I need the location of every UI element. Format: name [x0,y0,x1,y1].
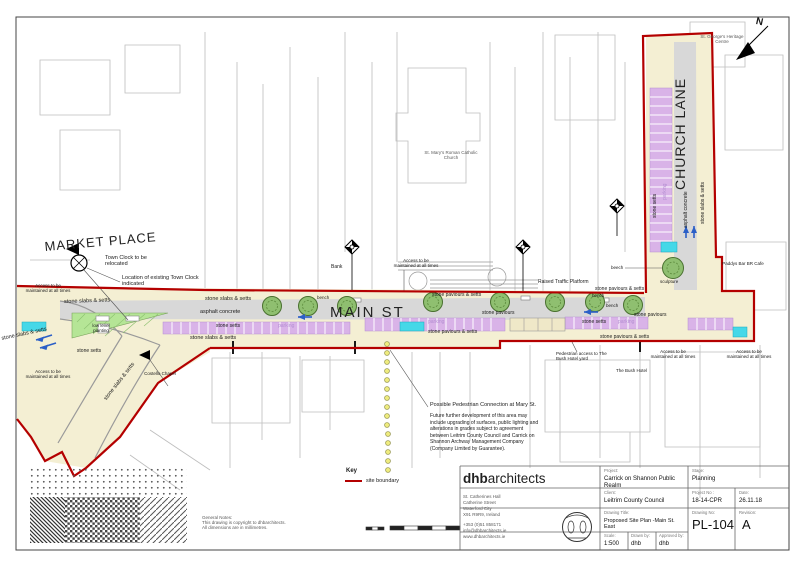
surface-label: parking [618,320,634,326]
pedestrian-connection-note: Possible Pedestrian Connection at Mary S… [430,402,536,408]
surface-label: stone paviours & setts [428,330,477,336]
scale-label: Scale: [604,534,616,539]
scale-value: 1:500 [604,541,619,548]
project-no-value: 18-14-CPR [692,498,722,505]
church-lane-label: CHURCH LANE [672,78,688,190]
bank-label: Bank [331,265,342,271]
pedestrian-connection-dots [385,342,391,473]
surface-label: stone paviours & setts [595,287,644,293]
project-label: Project: [604,469,618,474]
approved-by-value: dhb [659,541,669,548]
surface-label: stone paviours & setts [600,335,649,341]
general-notes: General Notes: This drawing is copyright… [202,515,286,531]
date-label: Date: [739,491,749,496]
surface-label: stone setts [653,194,659,218]
st-georges-label: St. George's Heritage Centre [697,34,747,44]
beech-label: beech [611,265,623,270]
logo-dhb: dhb [463,471,488,486]
sculpture-label: sculpture [660,279,678,284]
surface-label: stone slabs & setts [205,296,251,302]
drawn-by-label: Drawn by: [631,534,650,539]
access-note: Access to be maintained at all times [650,349,696,359]
main-st-label: MAIN ST [330,304,405,321]
client-value: Leitrim County Council [604,498,664,505]
bench-label: bench [606,303,618,308]
costello-chapel-label: Costello Chapel [144,371,176,376]
surface-label: asphalt concrete [684,191,690,228]
architect-logo: dhbarchitects [463,471,546,487]
future-development-note: Future further development of this area … [430,413,542,452]
st-marys-label: St. Mary's Roman Catholic Church [422,150,480,160]
surface-label: stone setts [74,349,104,355]
client-label: Client: [604,491,616,496]
access-note: Access to be maintained at all times [25,283,71,293]
surface-label: stone setts [216,324,240,330]
approved-by-label: Approved by: [659,534,684,539]
surface-label: stone slabs & setts [701,182,707,224]
bush-yard-access-note: Pedestrian access to The Bush Hotel yard [556,351,616,361]
access-note: Access to be maintained at all times [25,369,71,379]
drawing-sheet: MARKET PLACE MAIN ST CHURCH LANE stone s… [0,0,800,565]
date-value: 26.11.18 [739,498,762,505]
architect-address: St. Catherines Hall Catherine Street Wat… [463,494,501,518]
surface-label: stone paviours [634,313,667,319]
buildout-cells [510,318,565,331]
project-no-label: Project No : [692,491,714,496]
stage-value: Planning [692,476,715,483]
drawing-title-label: Drawing Title: [604,511,629,516]
town-clock-relocated-note: Town Clock to be relocated [105,255,163,268]
drawn-by-value: dhb [631,541,641,548]
bench-label: bench [592,293,604,298]
surface-label: parking [663,184,669,200]
stippled-area [30,468,187,543]
key-title: Key [346,468,357,475]
stage-label: Stage: [692,469,704,474]
access-note: Access to be maintained at all times [726,349,772,359]
surface-label: parking [428,320,444,326]
bench-label: bench [317,295,329,300]
surface-label: stone paviours [482,311,515,317]
access-note: Access to be maintained at all times [393,258,439,268]
revision-label: Revision: [739,511,756,516]
drawing-no-label: Drawing No: [692,511,715,516]
surface-label: stone setts [582,320,606,326]
project-value: Carrick on Shannon Public Realm [604,476,686,490]
surface-label: parking [278,324,294,330]
planting-label: low level planting [84,323,118,333]
drawing-title-value: Proposed Site Plan -Main St. East [604,518,686,531]
drawing-no-value: PL-104 [692,518,734,533]
logo-architects: architects [488,471,546,486]
bush-hotel-label: The Bush Hotel [616,368,647,373]
key-site-boundary-label: site boundary [366,478,399,484]
paddys-bar-label: Paddys Bar BR Cafe [722,261,764,266]
revision-value: A [742,518,751,533]
surface-label: stone slabs & setts [190,335,236,341]
raised-platform-note: Raised Traffic Platform [538,280,588,286]
town-clock-existing-note: Location of existing Town Clock indicate… [122,275,204,288]
surface-label: stone paviours & setts [432,293,481,299]
architect-contact: +353 (0)51 858171 info@dhbarchitects.ie … [463,522,506,540]
surface-label: asphalt concrete [200,309,240,315]
